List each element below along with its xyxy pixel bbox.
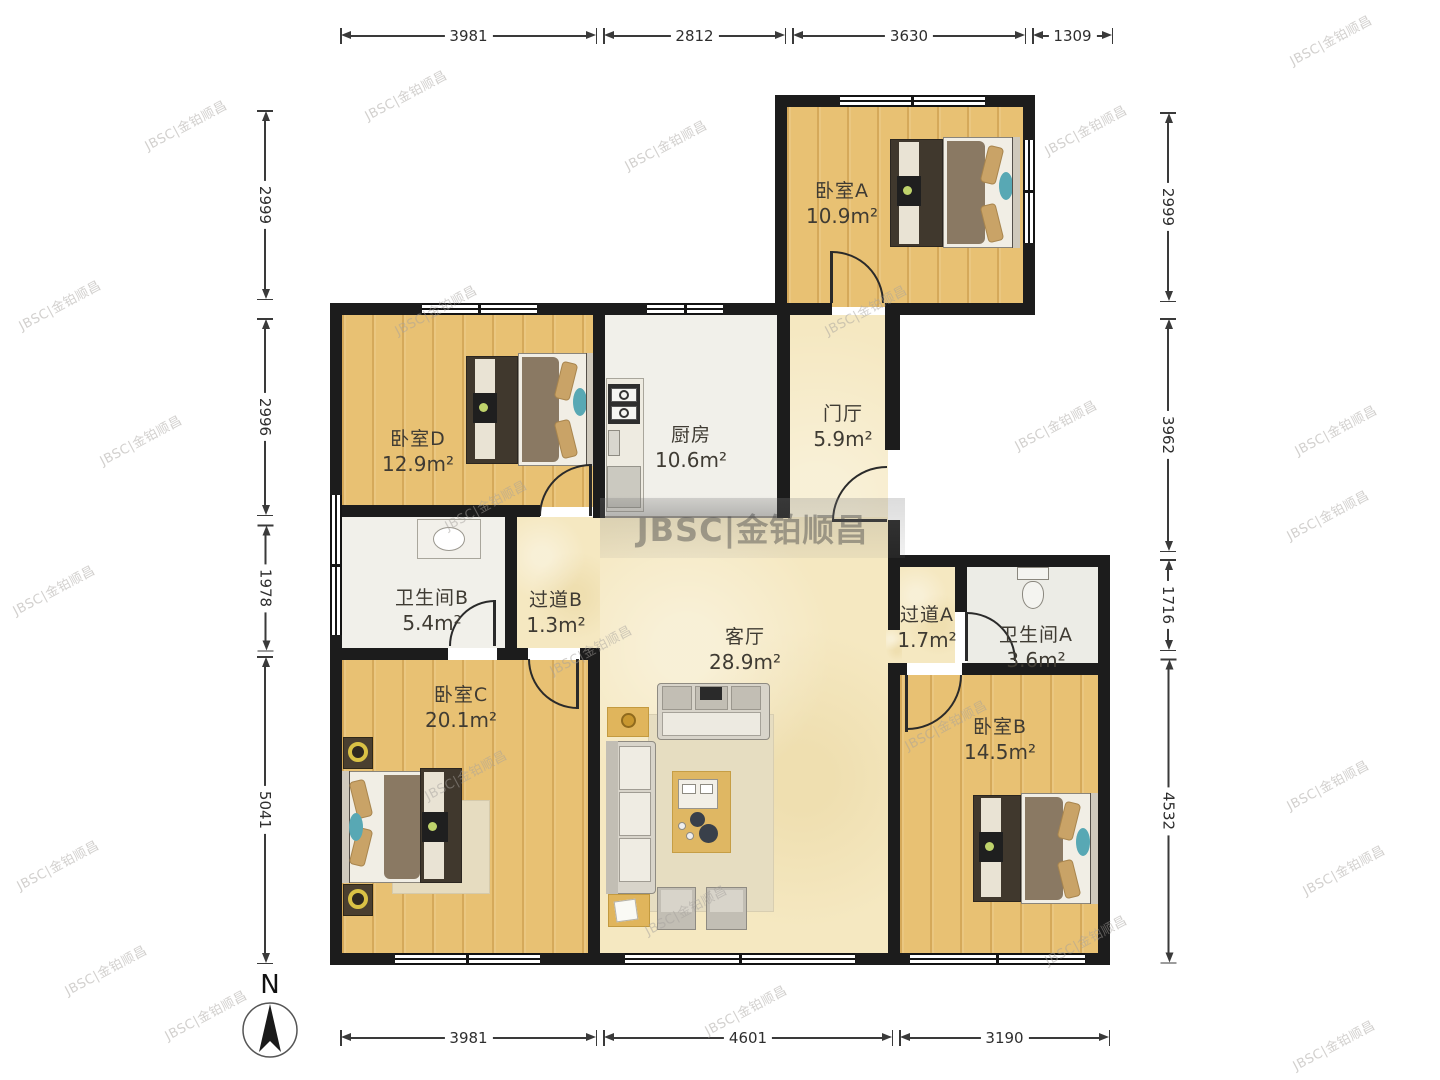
watermark-text: JBSC|金铂顺昌 xyxy=(61,940,150,999)
bedroom-c-door-leaf xyxy=(576,659,579,709)
sofa-cushion xyxy=(619,792,651,836)
room-label-entry-hall: 门厅 5.9m² xyxy=(813,399,872,451)
dim-value: 4601 xyxy=(724,1029,772,1047)
kitchen-threshold xyxy=(605,516,777,518)
dim-value: 1716 xyxy=(1159,581,1177,629)
room-name: 卫生间A xyxy=(999,620,1073,647)
bedroom-b-headboard xyxy=(1090,793,1098,904)
wall xyxy=(888,663,907,675)
loveseat-tray xyxy=(700,687,722,700)
toilet-bowl xyxy=(1022,581,1044,609)
room-label-corridor-b: 过道B 1.3m² xyxy=(526,585,585,637)
dim-value: 1309 xyxy=(1048,27,1096,45)
room-area: 1.7m² xyxy=(897,628,956,652)
toilet-tank xyxy=(1017,567,1049,580)
wall xyxy=(955,567,967,612)
watermark-text: JBSC|金铂顺昌 xyxy=(96,410,185,469)
bedroom-a-cushion xyxy=(999,172,1013,200)
bedroom-c-cushion xyxy=(349,813,363,841)
dim-value: 3981 xyxy=(444,27,492,45)
dim-left-2: 2996 xyxy=(255,318,275,516)
bedroom-b-window xyxy=(910,953,1085,965)
room-area: 1.3m² xyxy=(526,613,585,637)
room-area: 28.9m² xyxy=(709,650,781,674)
watermark-text: JBSC|金铂顺昌 xyxy=(621,115,710,174)
dim-value: 3190 xyxy=(980,1029,1028,1047)
room-name: 卧室C xyxy=(425,680,497,707)
side-table-decor xyxy=(621,713,636,728)
compass: N xyxy=(240,972,300,1064)
watermark-text: JBSC|金铂顺昌 xyxy=(1041,100,1130,159)
watermark-text: JBSC|金铂顺昌 xyxy=(1289,1015,1378,1074)
teapot-icon xyxy=(699,824,718,843)
dim-value: 3981 xyxy=(444,1029,492,1047)
wall xyxy=(342,505,540,517)
wall xyxy=(787,303,832,315)
teacup-icon xyxy=(686,832,694,840)
bedroom-a-blanket xyxy=(947,141,985,244)
side-table-papers xyxy=(614,899,639,923)
watermark-text: JBSC|金铂顺昌 xyxy=(361,65,450,124)
room-area: 5.4m² xyxy=(395,611,469,635)
dim-right-3: 1716 xyxy=(1158,559,1178,651)
room-name: 卫生间B xyxy=(395,583,469,610)
bathroom-a-door-leaf xyxy=(965,612,968,661)
room-name: 卧室D xyxy=(382,424,454,451)
dim-bottom-1: 3981 xyxy=(340,1028,597,1048)
room-label-bedroom-a: 卧室A 10.9m² xyxy=(806,176,878,228)
dim-bottom-3: 3190 xyxy=(899,1028,1110,1048)
watermark-text: JBSC|金铂顺昌 xyxy=(1299,840,1388,899)
dim-top-2: 2812 xyxy=(603,26,786,46)
room-label-bathroom-b: 卫生间B 5.4m² xyxy=(395,583,469,635)
bedroom-d-blanket xyxy=(522,357,559,462)
bedroom-c-tv-dot xyxy=(428,822,437,831)
wall xyxy=(497,648,528,660)
bedroom-b-cushion xyxy=(1076,828,1090,856)
bedroom-d-tv-dot xyxy=(479,403,488,412)
sofa-cushion xyxy=(619,838,651,882)
stove-burner-ring xyxy=(619,408,629,418)
bedroom-b-door-leaf xyxy=(905,675,908,732)
bedroom-c-lamp-icon xyxy=(348,742,368,762)
kitchen-window xyxy=(647,303,723,315)
bedroom-c-window xyxy=(395,953,540,965)
dim-right-2: 3962 xyxy=(1158,318,1178,552)
dim-right-4: 4532 xyxy=(1159,659,1179,964)
dim-top-1: 3981 xyxy=(340,26,597,46)
bedroom-d-window xyxy=(422,303,537,315)
dim-value: 4532 xyxy=(1160,787,1178,835)
room-name: 厨房 xyxy=(655,420,727,447)
wall xyxy=(342,648,448,660)
bedroom-b-blanket xyxy=(1025,797,1063,900)
room-label-bedroom-c: 卧室C 20.1m² xyxy=(425,680,497,732)
wall xyxy=(775,95,787,315)
bathroom-b-basin xyxy=(433,527,465,551)
loveseat-seat xyxy=(662,712,761,736)
room-label-bathroom-a: 卫生间A 3.6m² xyxy=(999,620,1073,672)
dim-value: 1978 xyxy=(257,564,275,612)
watermark-text: JBSC|金铂顺昌 xyxy=(1291,400,1380,459)
watermark-text: JBSC|金铂顺昌 xyxy=(1286,10,1375,69)
bedroom-a-tv-dot xyxy=(903,186,912,195)
bathroom-b-door-leaf xyxy=(493,600,496,646)
bedroom-c-lamp-icon xyxy=(348,889,368,909)
wall xyxy=(1098,555,1110,965)
room-name: 卧室B xyxy=(964,712,1036,739)
room-label-bedroom-d: 卧室D 12.9m² xyxy=(382,424,454,476)
stove-burner-ring xyxy=(619,390,629,400)
sofa-back xyxy=(606,741,618,894)
dim-value: 2999 xyxy=(256,181,274,229)
dim-bottom-2: 4601 xyxy=(603,1028,893,1048)
dim-value: 2812 xyxy=(670,27,718,45)
bathroom-b-window xyxy=(330,495,342,635)
room-area: 3.6m² xyxy=(999,648,1073,672)
dim-top-4: 1309 xyxy=(1032,26,1113,46)
ottoman-top xyxy=(710,890,743,912)
bedroom-c-blanket xyxy=(384,775,420,879)
north-arrow-icon xyxy=(240,998,300,1060)
bedroom-b-tv-dot xyxy=(985,842,994,851)
wall xyxy=(505,517,517,648)
dim-value: 5041 xyxy=(256,786,274,834)
room-area: 12.9m² xyxy=(382,452,454,476)
dim-value: 3630 xyxy=(885,27,933,45)
bedroom-a-side-window xyxy=(1023,140,1035,243)
wall xyxy=(888,675,900,965)
watermark-text: JBSC|金铂顺昌 xyxy=(9,560,98,619)
watermark-text: JBSC|金铂顺昌 xyxy=(15,275,104,334)
dim-value: 2996 xyxy=(256,393,274,441)
sofa-cushion xyxy=(619,746,651,790)
north-label: N xyxy=(240,972,300,998)
watermark-text: JBSC|金铂顺昌 xyxy=(141,95,230,154)
room-label-corridor-a: 过道A 1.7m² xyxy=(897,600,956,652)
kitchen-pass-shadow xyxy=(606,496,777,518)
room-name: 过道B xyxy=(526,585,585,612)
tray-item xyxy=(682,784,696,794)
loveseat-cushion xyxy=(731,686,761,710)
bedroom-d-door-leaf xyxy=(589,464,592,516)
living-room-window xyxy=(625,953,855,965)
entry-door-leaf xyxy=(832,519,887,522)
wall xyxy=(888,555,1110,567)
room-name: 过道A xyxy=(897,600,956,627)
bedroom-d-cushion xyxy=(573,388,587,416)
room-label-kitchen: 厨房 10.6m² xyxy=(655,420,727,472)
floor-plan-canvas: 卧室A 10.9m² 卧室D 12.9m² 厨房 10.6m² 门厅 5.9m²… xyxy=(0,0,1440,1080)
room-label-living-room: 客厅 28.9m² xyxy=(709,622,781,674)
watermark-text: JBSC|金铂顺昌 xyxy=(1283,755,1372,814)
room-label-bedroom-b: 卧室B 14.5m² xyxy=(964,712,1036,764)
dim-left-4: 5041 xyxy=(255,656,275,964)
room-area: 10.6m² xyxy=(655,448,727,472)
room-area: 5.9m² xyxy=(813,427,872,451)
bedroom-a-door-leaf xyxy=(830,251,833,303)
watermark-text: JBSC|金铂顺昌 xyxy=(13,835,102,894)
room-area: 14.5m² xyxy=(964,740,1036,764)
watermark-text: JBSC|金铂顺昌 xyxy=(161,985,250,1044)
dim-value: 2999 xyxy=(1159,183,1177,231)
dim-value: 3962 xyxy=(1159,411,1177,459)
teacup-icon xyxy=(678,822,686,830)
room-name: 客厅 xyxy=(709,622,781,649)
room-area: 10.9m² xyxy=(806,204,878,228)
bedroom-a-headboard xyxy=(1012,137,1020,248)
wall xyxy=(777,315,790,518)
dim-top-3: 3630 xyxy=(792,26,1026,46)
ottoman-top xyxy=(661,890,692,912)
wall xyxy=(885,303,1035,315)
watermark-text: JBSC|金铂顺昌 xyxy=(1011,395,1100,454)
bedroom-a-window xyxy=(840,95,985,107)
loveseat-cushion xyxy=(662,686,692,710)
watermark-text: JBSC|金铂顺昌 xyxy=(1283,485,1372,544)
tray-item xyxy=(700,784,713,794)
room-name: 卧室A xyxy=(806,176,878,203)
wall xyxy=(580,648,600,660)
dim-right-1: 2999 xyxy=(1158,112,1178,302)
dim-left-1: 2999 xyxy=(255,110,275,300)
dim-left-3: 1978 xyxy=(256,525,276,652)
kitchen-sink xyxy=(608,430,620,456)
wall xyxy=(588,660,600,953)
wall xyxy=(593,315,605,518)
room-area: 20.1m² xyxy=(425,708,497,732)
wall xyxy=(885,315,900,450)
room-name: 门厅 xyxy=(813,399,872,426)
